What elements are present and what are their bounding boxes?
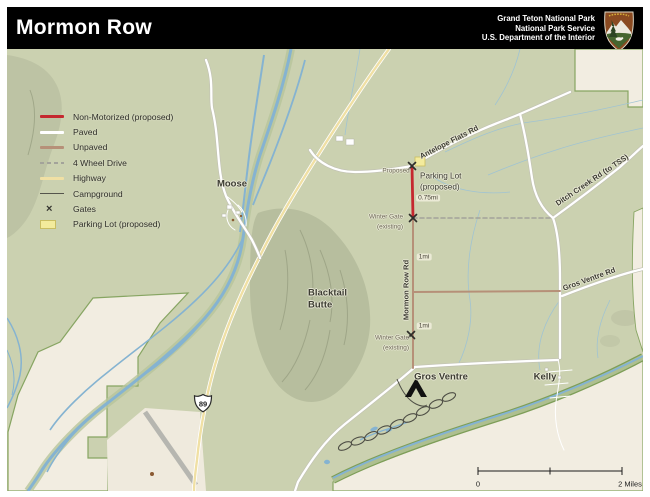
legend-label-highway: Highway	[73, 173, 106, 183]
highway-swatch-icon	[40, 177, 66, 180]
page-title: Mormon Row	[16, 16, 152, 40]
legend-label-unpaved: Unpaved	[73, 142, 107, 152]
header-bar: Mormon Row Grand Teton National Park Nat…	[7, 7, 643, 49]
legend-items: Non-Motorized (proposed)PavedUnpaved4 Wh…	[40, 109, 173, 232]
legend-label-gates: Gates	[73, 204, 96, 214]
proposed-parking-lot	[415, 157, 425, 166]
paved-swatch-icon	[40, 131, 66, 134]
legend-label-non-motorized: Non-Motorized (proposed)	[73, 112, 173, 122]
non-motorized-swatch-icon	[40, 115, 66, 118]
legend-item-parking-lot: Parking Lot (proposed)	[40, 217, 173, 232]
agency-line-3: U.S. Department of the Interior	[482, 33, 595, 43]
gates-swatch-icon: ×	[40, 204, 66, 214]
parking-lot-swatch-icon	[40, 220, 66, 229]
4-wheel-drive-swatch-icon	[40, 162, 66, 164]
legend-label-parking-lot: Parking Lot (proposed)	[73, 219, 160, 229]
agency-block: Grand Teton National Park National Park …	[482, 14, 595, 43]
legend-label-campground: Campground	[73, 189, 123, 199]
legend: Non-Motorized (proposed)PavedUnpaved4 Wh…	[40, 109, 173, 232]
legend-label-paved: Paved	[73, 127, 97, 137]
nps-arrowhead-icon	[602, 11, 636, 52]
shield-number: 89	[199, 400, 207, 409]
legend-item-gates: ×Gates	[40, 201, 173, 216]
legend-item-campground: Campground	[40, 186, 173, 201]
legend-label-4-wheel-drive: 4 Wheel Drive	[73, 158, 127, 168]
agency-line-1: Grand Teton National Park	[482, 14, 595, 24]
legend-item-highway: Highway	[40, 171, 173, 186]
legend-item-paved: Paved	[40, 124, 173, 139]
legend-item-non-motorized: Non-Motorized (proposed)	[40, 109, 173, 124]
agency-line-2: National Park Service	[482, 24, 595, 34]
campground-swatch-icon	[40, 193, 66, 195]
screenshot-root: Mormon Row Grand Teton National Park Nat…	[0, 0, 650, 497]
non-motorized-proposed-segment	[412, 166, 413, 218]
unpaved-swatch-icon	[40, 146, 66, 149]
legend-item-unpaved: Unpaved	[40, 140, 173, 155]
legend-item-4-wheel-drive: 4 Wheel Drive	[40, 155, 173, 170]
